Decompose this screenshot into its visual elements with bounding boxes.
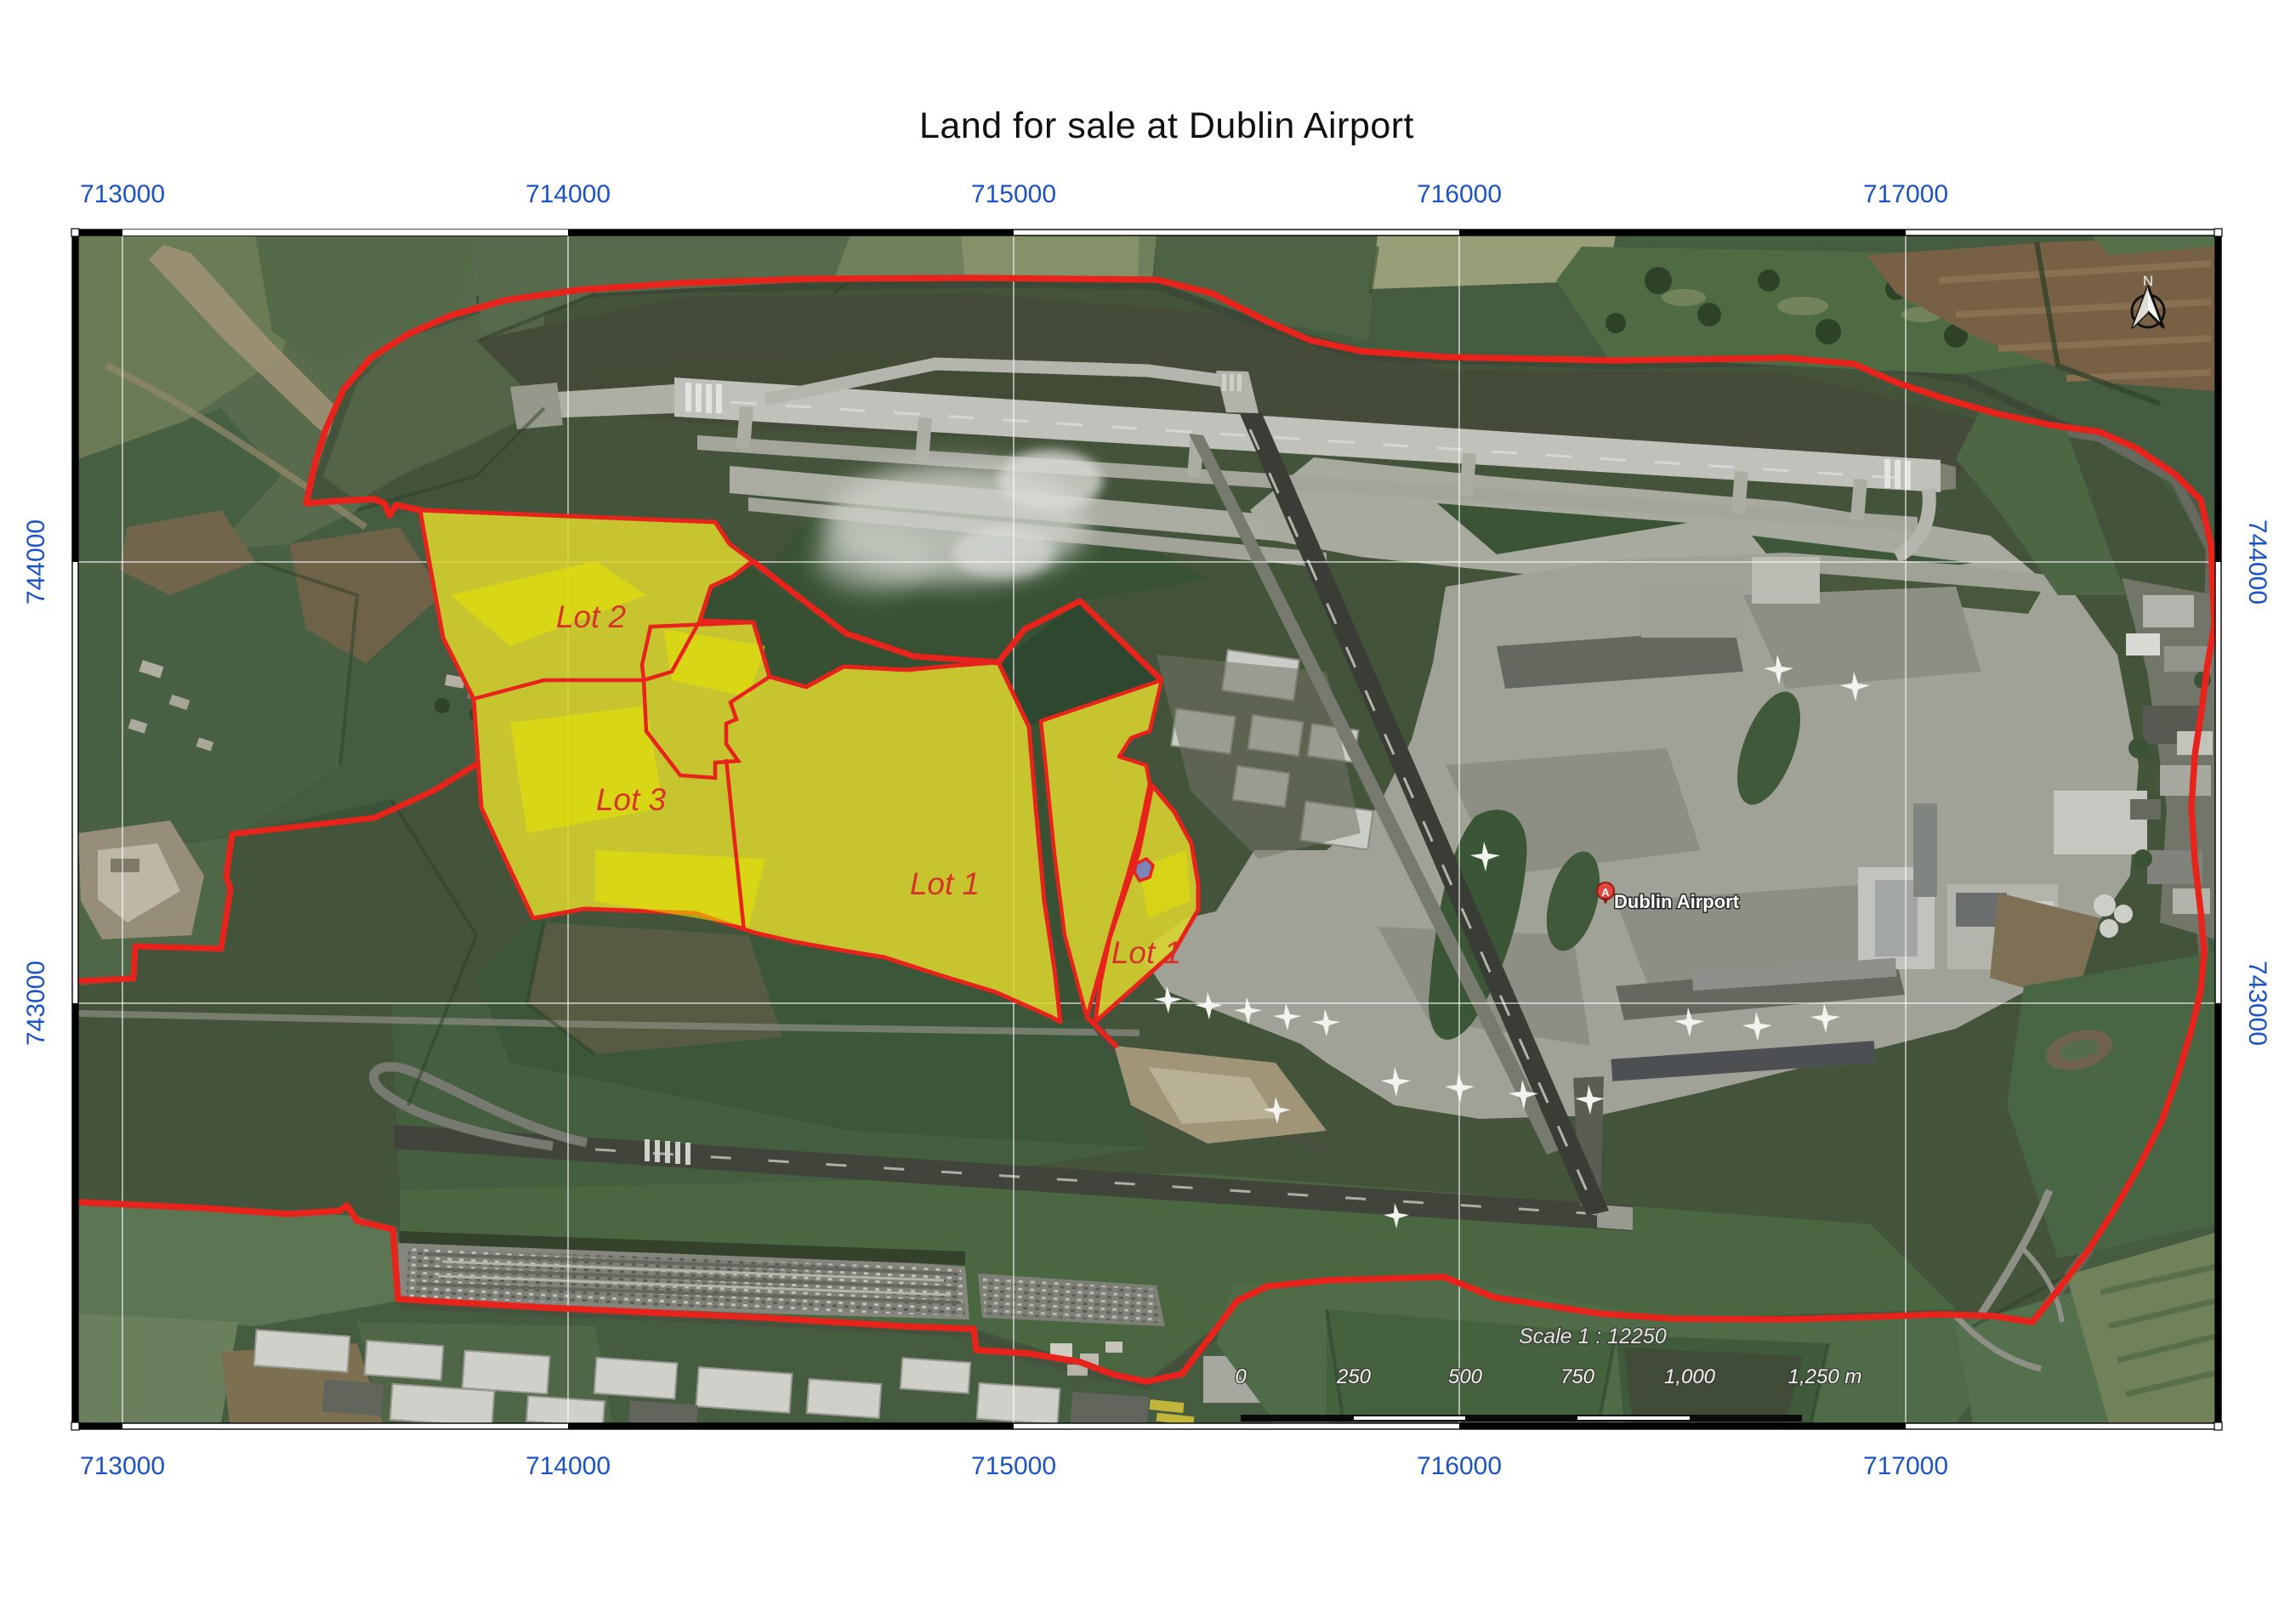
svg-text:715000: 715000 — [971, 180, 1056, 208]
svg-text:714000: 714000 — [526, 180, 611, 208]
svg-text:Land for sale at Dublin Airpor: Land for sale at Dublin Airport — [919, 105, 1414, 146]
svg-text:717000: 717000 — [1863, 180, 1948, 208]
svg-text:744000: 744000 — [2243, 519, 2271, 604]
svg-text:713000: 713000 — [80, 180, 165, 208]
svg-text:Lot 1: Lot 1 — [910, 866, 980, 901]
svg-text:744000: 744000 — [22, 519, 50, 604]
svg-text:713000: 713000 — [80, 1452, 165, 1480]
svg-text:716000: 716000 — [1417, 180, 1502, 208]
svg-text:750: 750 — [1560, 1365, 1595, 1388]
svg-text:716000: 716000 — [1417, 1452, 1502, 1480]
svg-text:250: 250 — [1336, 1365, 1372, 1388]
svg-text:1,000: 1,000 — [1664, 1365, 1716, 1388]
svg-text:1,250 m: 1,250 m — [1788, 1365, 1862, 1388]
svg-text:Dublin Airport: Dublin Airport — [1614, 891, 1740, 912]
svg-text:Lot 2: Lot 2 — [556, 599, 627, 634]
svg-text:Scale 1 : 12250: Scale 1 : 12250 — [1519, 1325, 1667, 1348]
svg-text:715000: 715000 — [971, 1452, 1056, 1480]
svg-text:0: 0 — [1235, 1365, 1247, 1388]
svg-text:743000: 743000 — [22, 961, 50, 1046]
svg-text:743000: 743000 — [2243, 961, 2271, 1046]
svg-text:714000: 714000 — [526, 1452, 611, 1480]
svg-text:A: A — [1601, 886, 1610, 899]
svg-text:500: 500 — [1448, 1365, 1483, 1388]
svg-text:Lot 3: Lot 3 — [596, 782, 667, 817]
svg-text:Lot 1: Lot 1 — [1111, 935, 1181, 970]
svg-text:717000: 717000 — [1863, 1452, 1948, 1480]
